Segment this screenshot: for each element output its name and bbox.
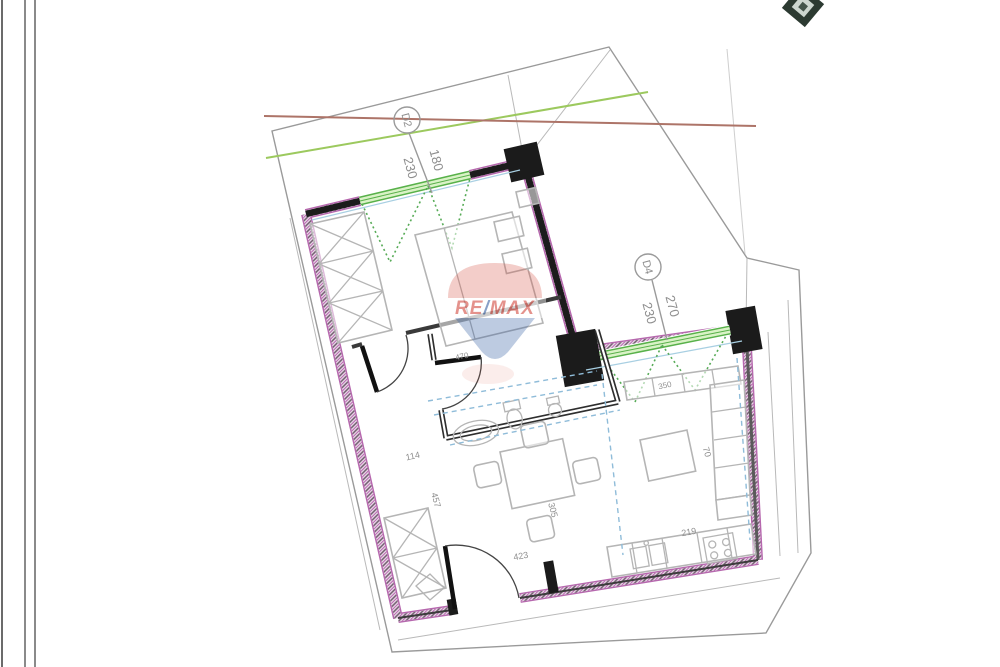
column (504, 142, 545, 183)
dining-table (500, 439, 575, 509)
d2-tag: D2 (398, 112, 413, 129)
chair (572, 457, 601, 485)
floorplan-drawing: D2 180 230 D4 270 230 457 305 70 114 470… (0, 0, 1000, 667)
bedroom-door (362, 335, 408, 392)
remax-wordmark: RE/MAX (455, 298, 535, 319)
wall-pier (543, 560, 558, 593)
roof-line-green (266, 92, 648, 158)
balloon-shadow (462, 364, 514, 384)
d4-tag: D4 (639, 259, 654, 276)
d4-height: 230 (639, 301, 659, 326)
chair (520, 421, 549, 449)
bedroom-wardrobe (310, 212, 392, 343)
opening-label-d4: D4 270 230 (635, 254, 683, 340)
page-margin-lines (2, 0, 35, 667)
column (725, 306, 762, 355)
roof-line-brown (264, 116, 756, 126)
floorplan-scan: D2 180 230 D4 270 230 457 305 70 114 470… (0, 0, 1000, 667)
dim-sofa: 70 (701, 446, 713, 458)
chair (526, 515, 555, 543)
coffee-table (640, 430, 696, 481)
partial-logo-icon (782, 0, 824, 27)
d4-width: 270 (662, 294, 682, 319)
nightstand (516, 188, 539, 208)
d2-height: 230 (400, 155, 420, 180)
entrance-door (445, 545, 519, 609)
dim-hall: 114 (405, 450, 421, 463)
d2-width: 180 (426, 148, 446, 173)
dim-left-run: 457 (429, 491, 443, 508)
chair (473, 461, 502, 489)
dim-dining-bottom: 423 (513, 550, 530, 562)
bathroom-door (435, 357, 481, 409)
